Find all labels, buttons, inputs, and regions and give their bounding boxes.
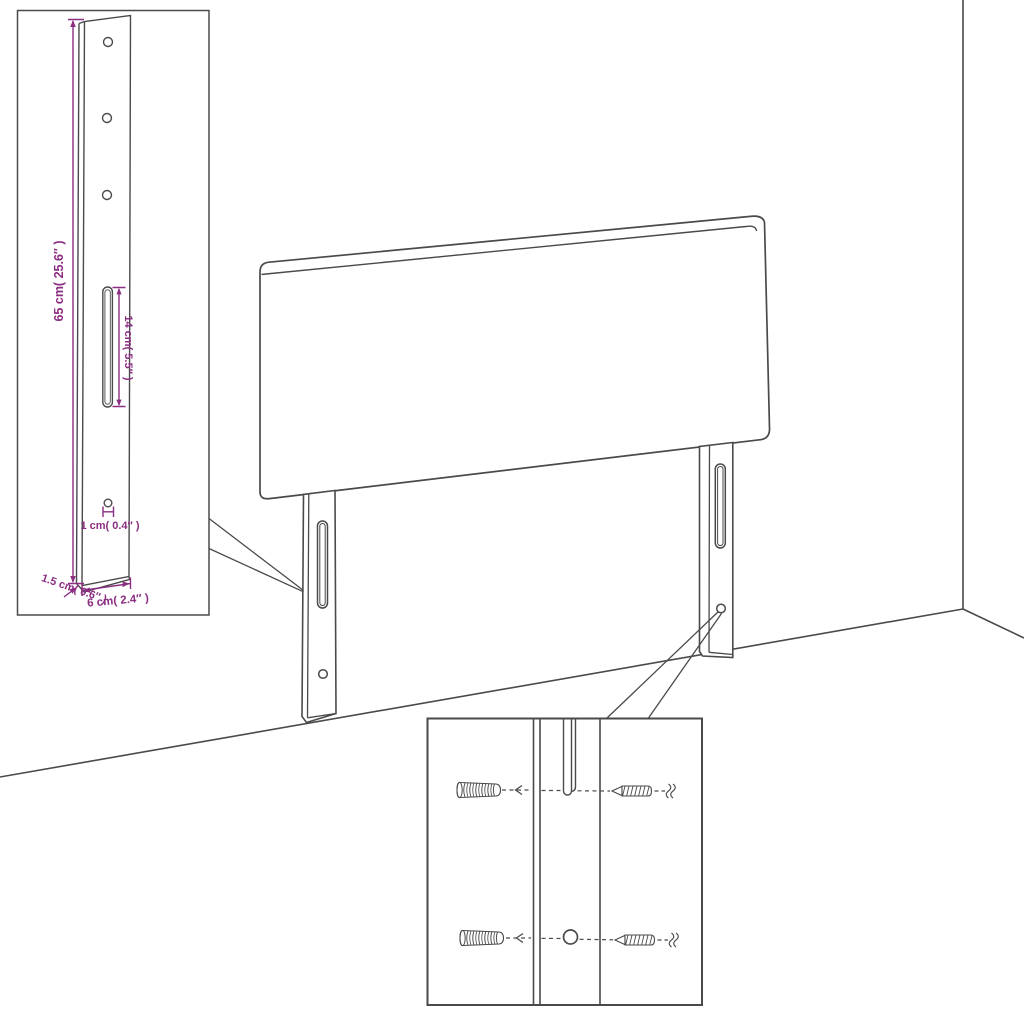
dimension-label-hole-diameter: 1 cm( 0.4″ ) xyxy=(80,520,139,532)
left-leg-screw-hole xyxy=(319,670,328,679)
hardware-inset xyxy=(428,719,703,1006)
headboard-front-face xyxy=(260,216,770,499)
inset-leg-hole-3 xyxy=(103,191,112,200)
left-leg-mounting-slot xyxy=(318,521,328,608)
headboard-left-leg xyxy=(302,491,336,723)
inset-leg-hole-1 xyxy=(104,38,113,47)
right-leg-mounting-slot xyxy=(715,464,725,548)
callout-lines xyxy=(209,519,722,719)
inset-leg-hole-2 xyxy=(103,114,112,123)
wall-plug-icon-bottom xyxy=(460,930,504,945)
inset-leg-small-hole xyxy=(104,499,112,507)
dimension-label-slot-length: 14 cm( 5.5″ ) xyxy=(122,315,134,380)
headboard-panel xyxy=(260,216,770,499)
callout-inset1-to-left-leg xyxy=(209,519,304,592)
assembly-diagram: 65 cm( 25.6″ ) 14 cm( 5.5″ ) 1 cm( 0.4″ … xyxy=(0,0,1024,1024)
hardware-inset-border xyxy=(428,719,703,1006)
diagram-linework xyxy=(0,0,1024,1024)
dimension-label-leg-height: 65 cm( 25.6″ ) xyxy=(52,240,66,321)
floor-line-right xyxy=(963,609,1024,638)
inset-leg-slot xyxy=(103,287,113,407)
wall-plug-icon-top xyxy=(457,782,501,797)
